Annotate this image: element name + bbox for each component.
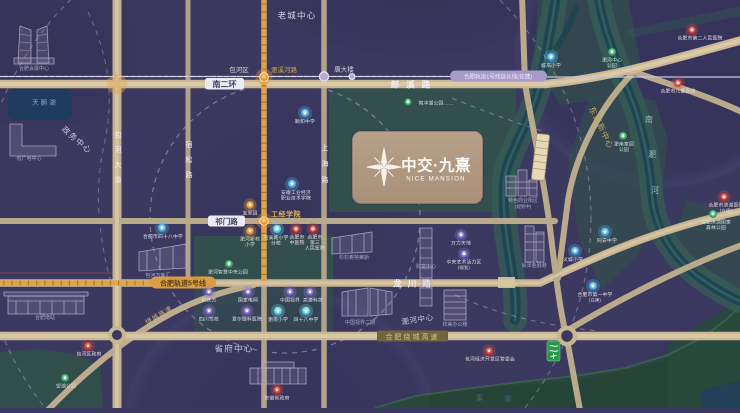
- svg-text:义城小学: 义城小学: [563, 256, 583, 263]
- svg-text:第三: 第三: [310, 239, 320, 246]
- svg-text:包河区: 包河区: [229, 65, 249, 74]
- svg-text:合肥市: 合肥市: [308, 233, 323, 240]
- svg-text:省府中心: 省府中心: [215, 344, 254, 354]
- svg-text:南二环: 南二环: [213, 79, 237, 89]
- svg-text:合肥市第二人民医院: 合肥市第二人民医院: [678, 34, 723, 41]
- svg-text:河: 河: [115, 146, 122, 154]
- svg-text:同安中学: 同安中学: [597, 237, 617, 244]
- svg-text:河: 河: [651, 185, 659, 195]
- svg-text:(在建): (在建): [720, 207, 732, 214]
- svg-text:万力天地: 万力天地: [451, 240, 471, 247]
- svg-text:松: 松: [186, 155, 193, 164]
- svg-text:淝河中心: 淝河中心: [602, 57, 622, 64]
- svg-text:分校: 分校: [271, 239, 281, 246]
- svg-text:合肥南站: 合肥南站: [35, 314, 55, 321]
- svg-text:(在建): (在建): [589, 296, 601, 303]
- svg-text:包河经济开发区管委会: 包河经济开发区管委会: [465, 355, 515, 362]
- svg-text:唐大楼: 唐大楼: [334, 65, 354, 74]
- svg-text:郎溪路: 郎溪路: [391, 80, 438, 90]
- svg-text:老城中心: 老城中心: [278, 11, 317, 21]
- svg-text:杉杉奥特莱斯: 杉杉奥特莱斯: [339, 254, 369, 261]
- svg-text:巢: 巢: [476, 393, 484, 402]
- svg-text:(规划): (规划): [458, 264, 470, 271]
- svg-text:包河区政府: 包河区政府: [77, 350, 102, 357]
- svg-text:祁门路: 祁门路: [215, 216, 238, 226]
- svg-text:淝南家园: 淝南家园: [614, 141, 634, 148]
- svg-text:道: 道: [115, 175, 122, 184]
- svg-text:中交·九熹: 中交·九熹: [401, 156, 471, 175]
- svg-text:望湖公园: 望湖公园: [56, 383, 76, 390]
- svg-text:海: 海: [322, 159, 329, 168]
- svg-text:尚泽金融港: 尚泽金融港: [521, 262, 546, 269]
- svg-text:小学: 小学: [245, 241, 255, 248]
- svg-text:路: 路: [322, 175, 329, 184]
- svg-text:森林公园: 森林公园: [706, 224, 726, 231]
- svg-text:合肥绕城高速: 合肥绕城高速: [386, 332, 440, 341]
- svg-text:新东方: 新东方: [202, 296, 217, 303]
- svg-text:(规划中): (规划中): [515, 203, 532, 210]
- svg-text:合肥轨道5号线: 合肥轨道5号线: [159, 279, 206, 288]
- svg-text:职业技术学院: 职业技术学院: [281, 194, 311, 201]
- svg-text:屯溪路小学: 屯溪路小学: [264, 234, 289, 241]
- svg-text:祥美办公楼: 祥美办公楼: [442, 321, 467, 328]
- svg-text:颐和中学: 颐和中学: [295, 118, 315, 125]
- svg-text:省广电中心: 省广电中心: [16, 155, 41, 162]
- svg-text:梅冲湖公园……: 梅冲湖公园……: [419, 100, 454, 107]
- svg-text:淝南小学: 淝南小学: [268, 316, 288, 323]
- svg-text:中医院: 中医院: [290, 239, 305, 246]
- svg-text:合肥轨道1号线延长线(在建): 合肥轨道1号线延长线(在建): [464, 73, 533, 81]
- svg-text:人民医院: 人民医院: [305, 245, 325, 252]
- svg-text:包河万象汇: 包河万象汇: [145, 272, 170, 279]
- svg-text:安徽工业经济: 安徽工业经济: [281, 189, 311, 196]
- svg-text:爱尔眼科医院: 爱尔眼科医院: [232, 315, 262, 322]
- svg-text:淝: 淝: [648, 150, 656, 159]
- svg-text:特色商业街区: 特色商业街区: [508, 197, 538, 204]
- svg-text:合肥会展中心: 合肥会展中心: [19, 65, 49, 72]
- svg-text:湖: 湖: [504, 394, 512, 403]
- svg-text:大: 大: [115, 160, 122, 169]
- svg-text:天鹅湖: 天鹅湖: [32, 98, 58, 107]
- svg-text:国家电网: 国家电网: [238, 296, 258, 303]
- svg-text:淝溪河路: 淝溪河路: [271, 65, 298, 74]
- svg-text:合肥滨湖国家: 合肥滨湖国家: [701, 219, 731, 226]
- svg-text:高速科技: 高速科技: [303, 296, 323, 303]
- svg-text:工经学院: 工经学院: [271, 210, 301, 219]
- svg-text:安徽省政府: 安徽省政府: [265, 394, 290, 401]
- svg-text:四川驾校: 四川驾校: [199, 315, 219, 322]
- svg-text:宝翠园: 宝翠园: [243, 209, 258, 216]
- svg-text:合肥市: 合肥市: [290, 233, 305, 240]
- svg-text:路: 路: [186, 170, 193, 179]
- svg-text:上: 上: [322, 143, 329, 152]
- svg-text:财富中心: 财富中心: [416, 263, 436, 270]
- svg-text:包: 包: [115, 130, 122, 139]
- svg-text:中国视界二期: 中国视界二期: [345, 319, 375, 326]
- svg-text:NICE MANSION: NICE MANSION: [406, 177, 466, 183]
- svg-text:淝河新村: 淝河新村: [240, 235, 260, 242]
- svg-text:中国视界: 中国视界: [280, 296, 300, 303]
- svg-text:公园: 公园: [619, 147, 629, 153]
- svg-text:合肥市四十八中学: 合肥市四十八中学: [143, 233, 183, 240]
- svg-text:合肥市儿童医院: 合肥市儿童医院: [661, 87, 696, 94]
- svg-text:城东小学: 城东小学: [541, 62, 561, 69]
- svg-text:四十八中学: 四十八中学: [294, 316, 319, 323]
- svg-text:南: 南: [645, 114, 653, 124]
- svg-text:淝河智慧中央公园: 淝河智慧中央公园: [208, 269, 248, 276]
- svg-text:宿: 宿: [186, 140, 193, 149]
- svg-text:公园: 公园: [607, 63, 617, 69]
